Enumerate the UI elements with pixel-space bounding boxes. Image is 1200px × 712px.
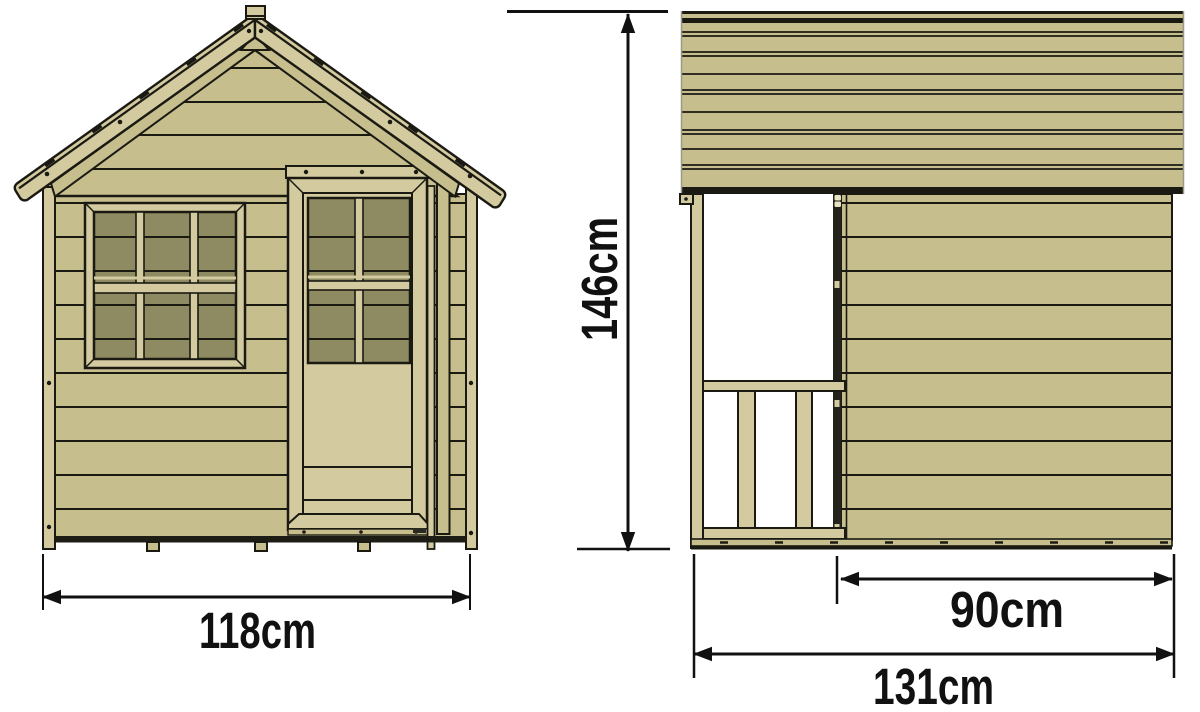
svg-text:146cm: 146cm <box>571 217 628 341</box>
svg-text:90cm: 90cm <box>950 581 1064 638</box>
svg-text:118cm: 118cm <box>199 602 316 659</box>
svg-text:131cm: 131cm <box>873 658 994 712</box>
